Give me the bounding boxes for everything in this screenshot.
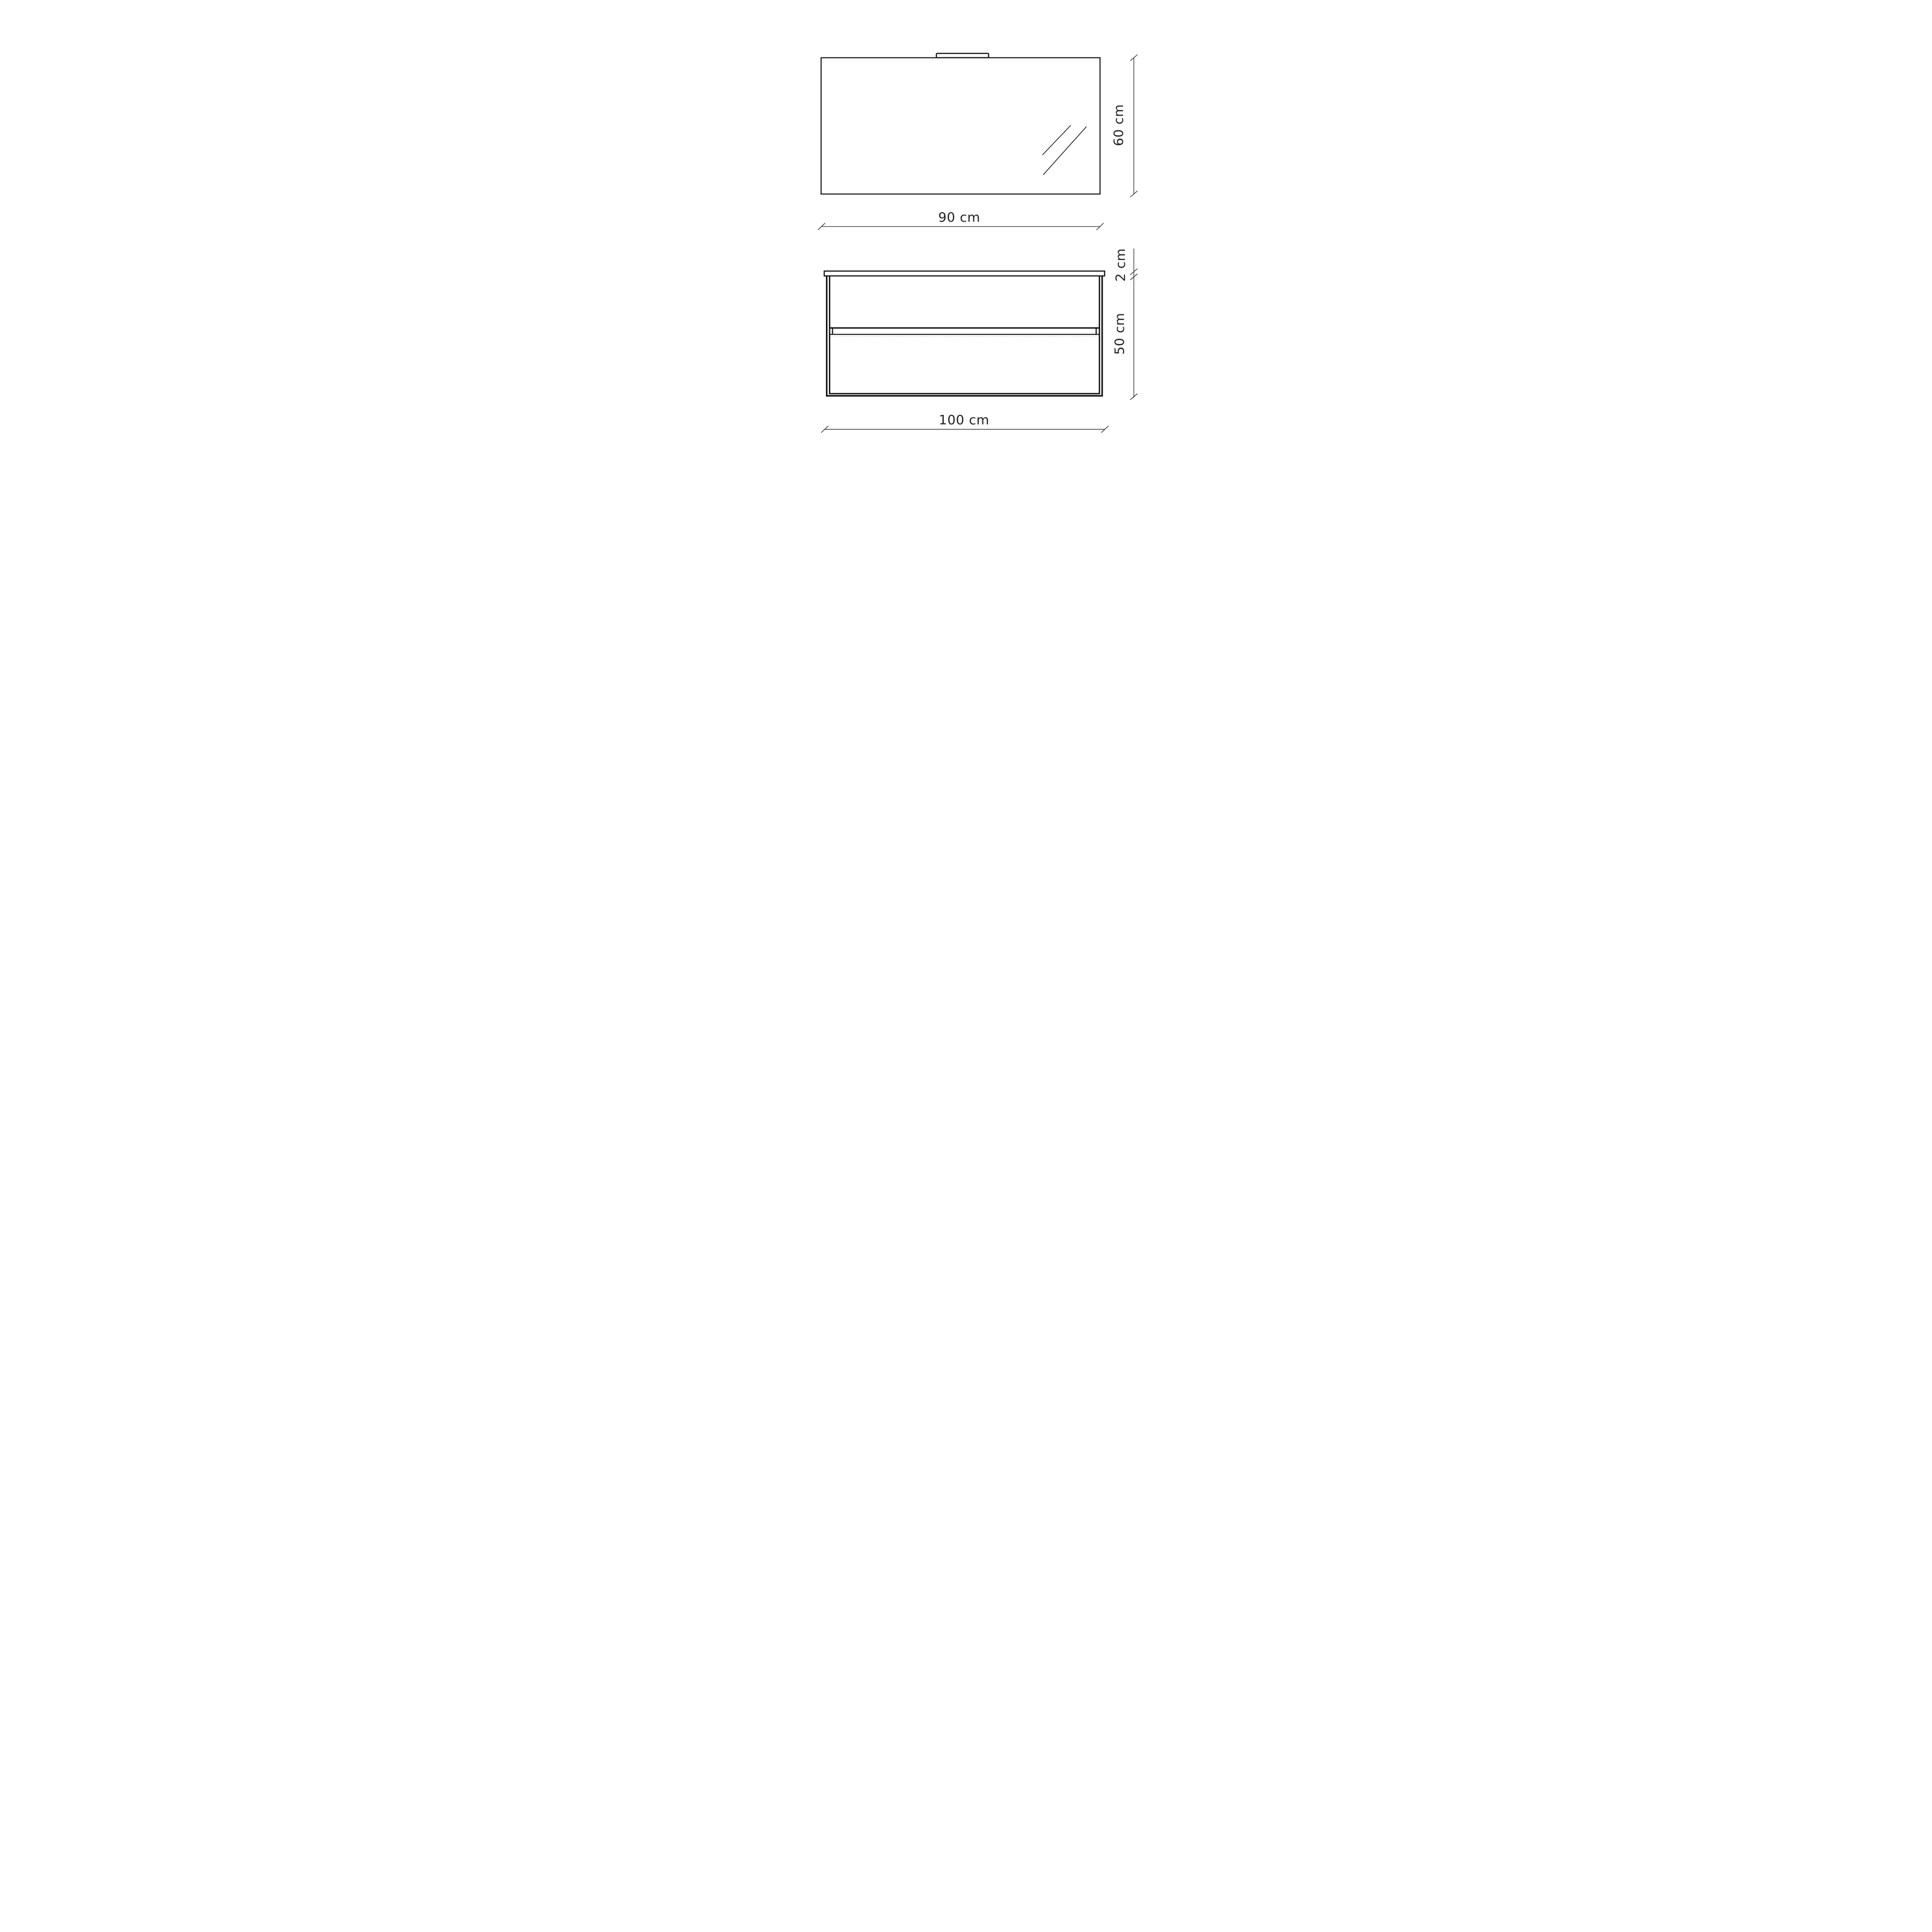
vanity-top-thickness-label: 2 cm	[1113, 248, 1128, 282]
vanity-width-dimension: 100 cm	[822, 413, 1108, 433]
vanity-width-label: 100 cm	[939, 413, 990, 428]
mirror-width-label: 90 cm	[938, 210, 980, 225]
vanity-body-outline	[827, 276, 1102, 396]
mirror-light-fixture	[937, 54, 989, 58]
mirror-height-dimension: 60 cm	[1111, 55, 1137, 197]
vanity-countertop	[824, 271, 1105, 276]
mirror-height-label: 60 cm	[1111, 104, 1126, 146]
mirror-width-dimension: 90 cm	[818, 210, 1104, 230]
vanity-height-label: 50 cm	[1112, 313, 1127, 355]
vanity-front-view: 2 cm 50 cm 100 cm	[822, 248, 1137, 433]
mirror-outline	[821, 58, 1100, 194]
technical-drawing: 60 cm 90 cm	[724, 0, 1207, 483]
vanity-mirror-dimension-diagram: 60 cm 90 cm	[724, 0, 1207, 483]
vanity-height-dimension: 2 cm 50 cm	[1112, 248, 1137, 399]
mirror-front-view: 60 cm 90 cm	[818, 54, 1137, 230]
